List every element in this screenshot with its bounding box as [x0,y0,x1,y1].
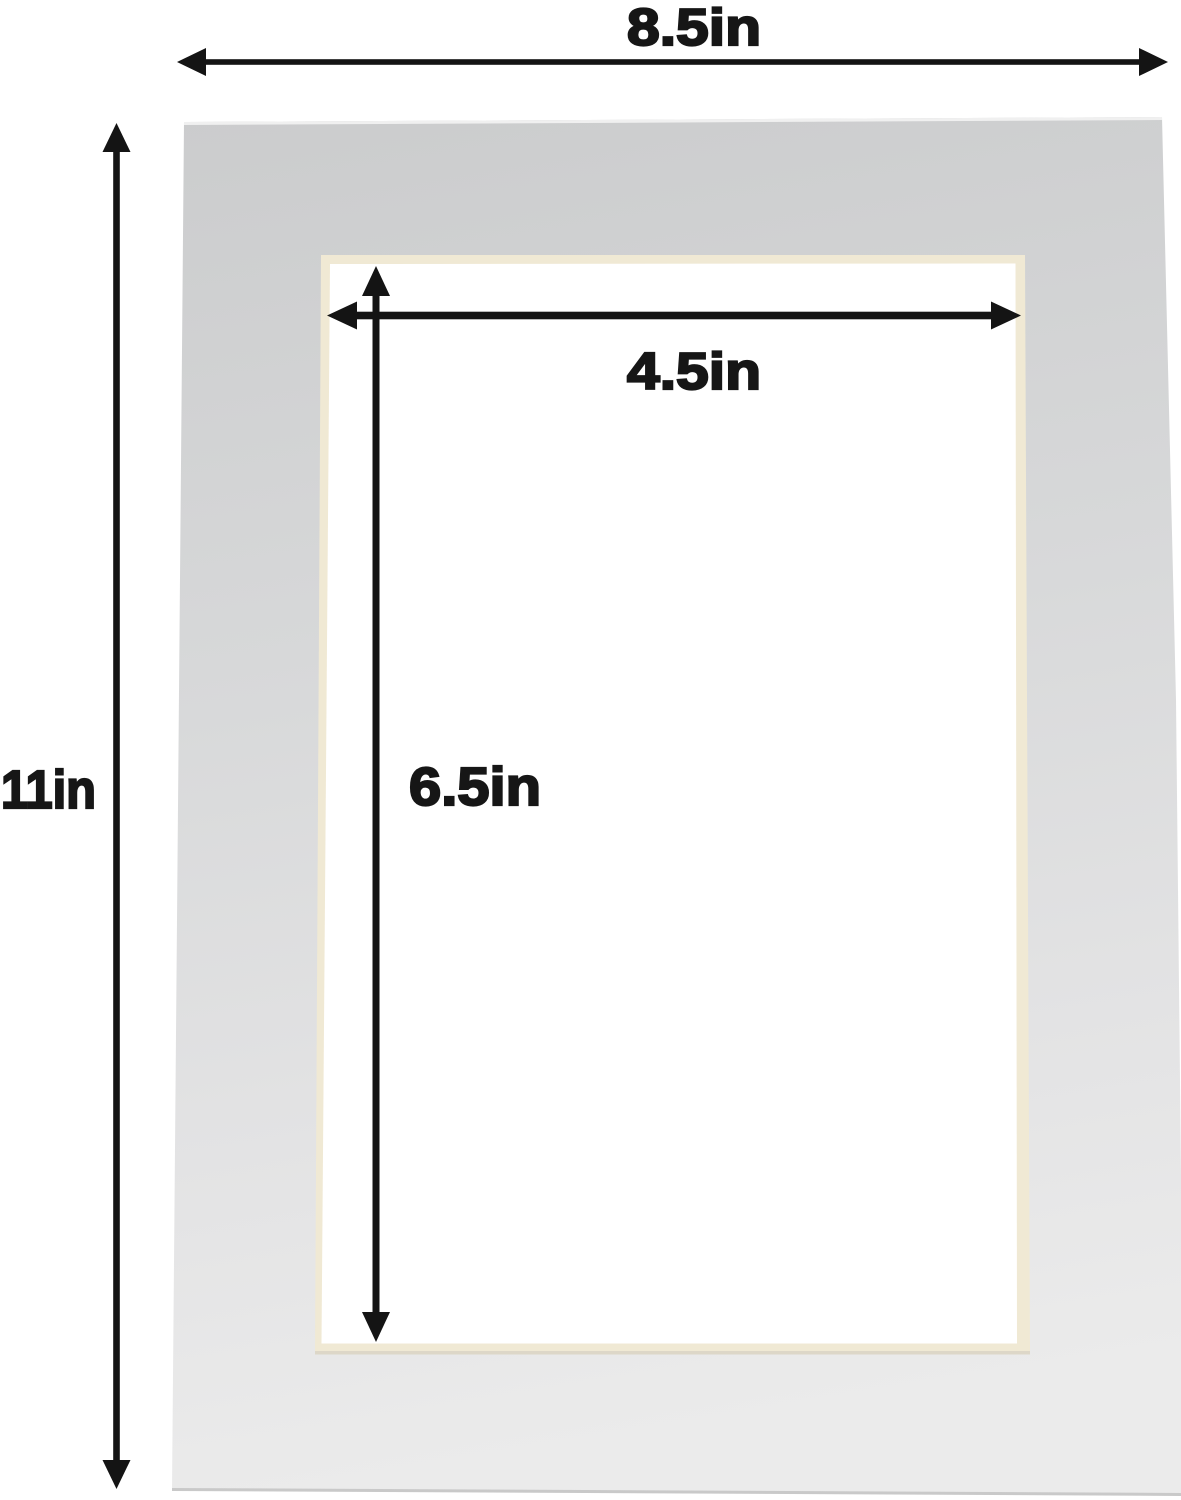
svg-text:11in: 11in [1,760,96,820]
svg-text:4.5in: 4.5in [627,343,761,401]
svg-text:8.5in: 8.5in [627,0,761,57]
svg-text:6.5in: 6.5in [409,757,541,817]
